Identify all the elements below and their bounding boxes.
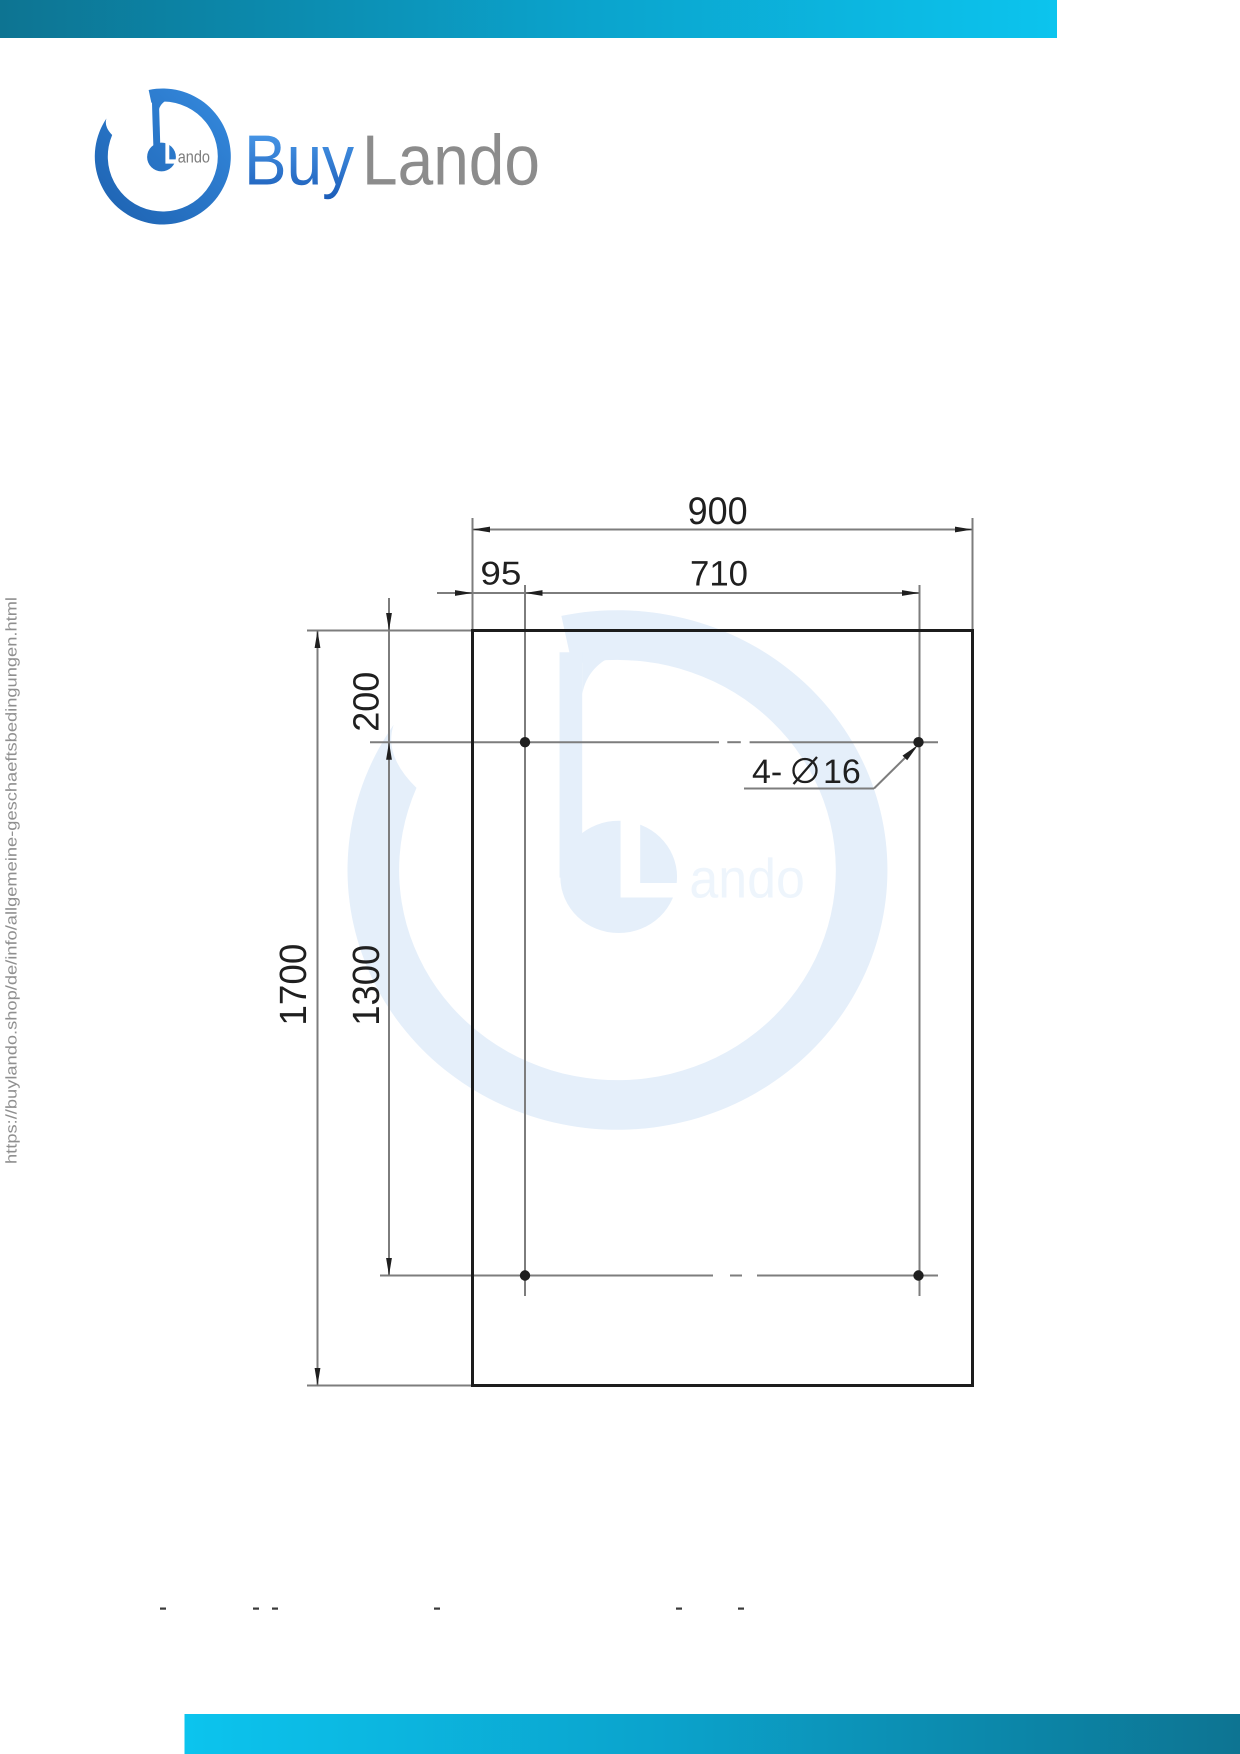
svg-text:200: 200 (346, 672, 387, 732)
svg-text:1300: 1300 (346, 945, 388, 1026)
svg-text:https://buylando.shop/de/info/: https://buylando.shop/de/info/allgemeine… (4, 597, 21, 1164)
svg-text:95: 95 (480, 555, 521, 592)
svg-text:Buy: Buy (244, 122, 354, 201)
svg-text:710: 710 (690, 554, 748, 594)
svg-text:Lando: Lando (362, 122, 540, 201)
svg-text:1700: 1700 (273, 944, 315, 1026)
svg-text:16: 16 (823, 753, 861, 791)
svg-text:ando: ando (178, 148, 210, 167)
svg-text:900: 900 (688, 490, 748, 533)
svg-text:ando: ando (689, 852, 805, 913)
svg-text:4-: 4- (752, 753, 782, 791)
